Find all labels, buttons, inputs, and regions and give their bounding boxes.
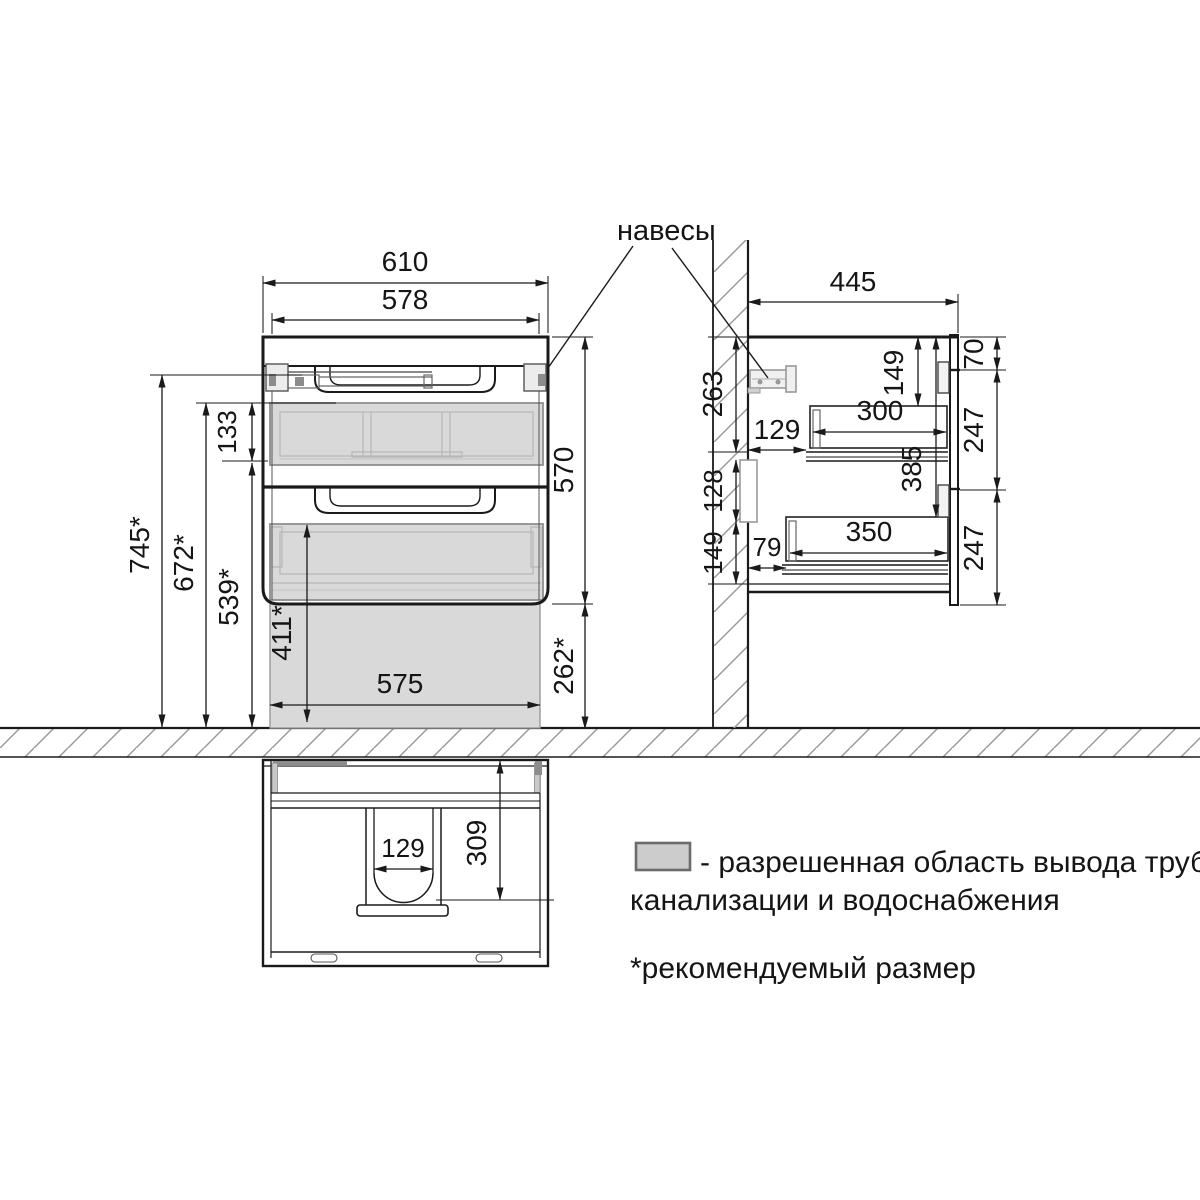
legend-footnote: *рекомендуемый размер xyxy=(630,952,976,985)
dim-front-drawer2-height: 247 xyxy=(958,525,989,572)
dim-zone-mid-height: 539* xyxy=(213,568,244,626)
dim-cabinet-height: 570 xyxy=(548,447,579,494)
plan-hanger-rail xyxy=(273,761,347,766)
dim-top-to-lower-drawer: 385 xyxy=(896,446,927,493)
dim-mounting-height: 745* xyxy=(124,516,155,574)
dim-top-to-upper-drawer: 149 xyxy=(878,350,909,397)
plan-outline xyxy=(263,760,548,966)
plan-handle-recess-right xyxy=(476,954,502,962)
dim-front-drawer1-height: 247 xyxy=(958,407,989,454)
dim-zone-width: 575 xyxy=(377,668,424,699)
dim-wall-niche-height: 128 xyxy=(698,469,728,512)
drawing-canvas: 610 578 570 262* 745* 672* 133 539* 411 xyxy=(0,0,1200,1200)
legend-line1: - разрешенная область вывода труб xyxy=(700,846,1200,879)
floor-hatch xyxy=(0,728,1200,757)
dim-outer-width: 610 xyxy=(382,246,429,277)
dim-upper-drawer-wall-gap: 129 xyxy=(754,414,801,445)
dim-wall-offset-top: 263 xyxy=(697,371,728,418)
allowed-zone-floor xyxy=(270,604,540,728)
front-bracket-lower xyxy=(938,485,949,517)
dim-floor-clearance: 262* xyxy=(548,637,579,695)
dim-zone-top-height: 672* xyxy=(168,534,199,592)
plan-hanger-bracket xyxy=(535,761,542,775)
mounting-rail xyxy=(266,372,432,388)
plan-dimensions: 129 309 xyxy=(374,761,554,900)
hangers-label: навесы xyxy=(617,215,716,247)
dim-zone-inner-height: 411* xyxy=(266,605,297,661)
dim-upper-drawer-depth: 300 xyxy=(857,395,904,426)
floor-section xyxy=(0,728,1200,757)
dim-wall-offset-bottom: 149 xyxy=(698,531,728,574)
front-panel-edge xyxy=(950,335,958,605)
wall-niche xyxy=(740,460,757,522)
dim-zone-band-height: 133 xyxy=(212,410,242,453)
dim-cutout-depth: 309 xyxy=(461,820,492,867)
bottom-view: 129 309 xyxy=(263,760,554,966)
dim-lower-drawer-depth: 350 xyxy=(846,516,893,547)
legend-swatch xyxy=(636,843,690,870)
side-hanger-bracket xyxy=(748,366,796,393)
drawer2-handle xyxy=(315,488,495,513)
dim-inner-width: 578 xyxy=(382,284,429,315)
right-hanger-bracket xyxy=(524,364,546,391)
front-view: 610 578 570 262* 745* 672* 133 539* 411 xyxy=(124,246,593,729)
front-bracket-upper xyxy=(938,362,949,393)
legend: - разрешенная область вывода труб канали… xyxy=(630,843,1200,985)
dim-front-top-height: 70 xyxy=(958,338,989,369)
dim-cutout-width: 129 xyxy=(381,833,424,863)
hangers-leader-left xyxy=(548,246,633,368)
dim-lower-drawer-wall-gap: 79 xyxy=(753,532,782,562)
legend-line2: канализации и водоснабжения xyxy=(630,884,1060,917)
allowed-zone-lower xyxy=(270,524,543,600)
plan-handle-recess-left xyxy=(311,954,337,962)
left-hanger-bracket xyxy=(266,364,288,391)
drawer1-handle xyxy=(315,367,495,392)
dim-depth: 445 xyxy=(830,266,877,297)
